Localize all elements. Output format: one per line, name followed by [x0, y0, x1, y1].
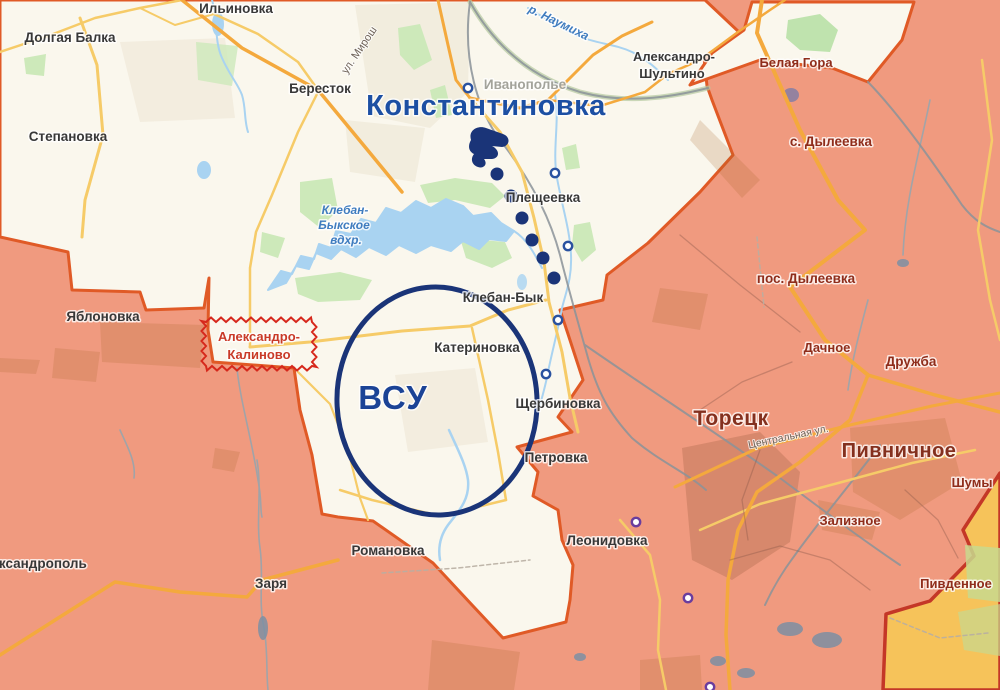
label-28: вдхр. — [330, 233, 362, 247]
label-7: Катериновка — [434, 340, 520, 355]
settlement-ring-violet-1 — [632, 518, 640, 526]
label-3: Степановка — [29, 129, 108, 144]
label-13: Леонидовка — [566, 533, 648, 548]
advance-dot-1 — [491, 168, 504, 181]
main-city-label: Константиновка — [366, 90, 606, 122]
settlement-ring-blue-2 — [551, 169, 559, 177]
highlight-label-line1: Александро- — [218, 329, 300, 344]
label-15: Шультино — [639, 66, 704, 81]
label-14: Александро- — [633, 49, 715, 64]
label-16: Белая Гора — [759, 55, 833, 70]
label-25: Пивденное — [920, 576, 992, 591]
settlement-ring-blue-4 — [554, 316, 562, 324]
settlement-ring-blue-5 — [542, 370, 550, 378]
advance-dot-6 — [548, 272, 561, 285]
label-19: Дачное — [804, 340, 851, 355]
settlement-ring-blue-3 — [564, 242, 572, 250]
label-26: Клебан- — [322, 203, 369, 217]
label-8: Щербиновка — [515, 396, 601, 411]
label-4: Яблоновка — [66, 309, 140, 324]
advance-dot-4 — [526, 234, 539, 247]
label-0: Ильиновка — [199, 1, 273, 16]
label-12: Александрополь — [0, 556, 87, 571]
label-2: Бересток — [289, 81, 351, 96]
label-10: Романовка — [351, 543, 425, 558]
settlement-ring-violet-2 — [684, 594, 692, 602]
advance-dot-5 — [537, 252, 550, 265]
label-6: Клебан-Бык — [463, 290, 544, 305]
label-11: Заря — [255, 576, 287, 591]
label-20: Дружба — [886, 354, 937, 369]
advance-dot-3 — [516, 212, 529, 225]
label-27: Быкское — [318, 218, 370, 232]
label-17: с. Дылеевка — [790, 134, 873, 149]
situation-map[interactable]: ИльиновкаДолгая БалкаБерестокСтепановкаЯ… — [0, 0, 1000, 690]
label-5: Плещеевка — [506, 190, 581, 205]
highlight-label-line2: Калиново — [227, 347, 290, 362]
label-21: Торецк — [693, 407, 768, 430]
label-24: Зализное — [819, 513, 880, 528]
label-9: Петровка — [525, 450, 588, 465]
vsu-label: ВСУ — [358, 379, 428, 416]
label-18: пос. Дылеевка — [757, 271, 856, 286]
label-22: Пивничное — [842, 440, 957, 462]
label-1: Долгая Балка — [24, 30, 116, 45]
label-23: Шумы — [952, 475, 993, 490]
settlement-ring-violet-3 — [706, 683, 714, 690]
map-canvas[interactable]: ИльиновкаДолгая БалкаБерестокСтепановкаЯ… — [0, 0, 1000, 690]
